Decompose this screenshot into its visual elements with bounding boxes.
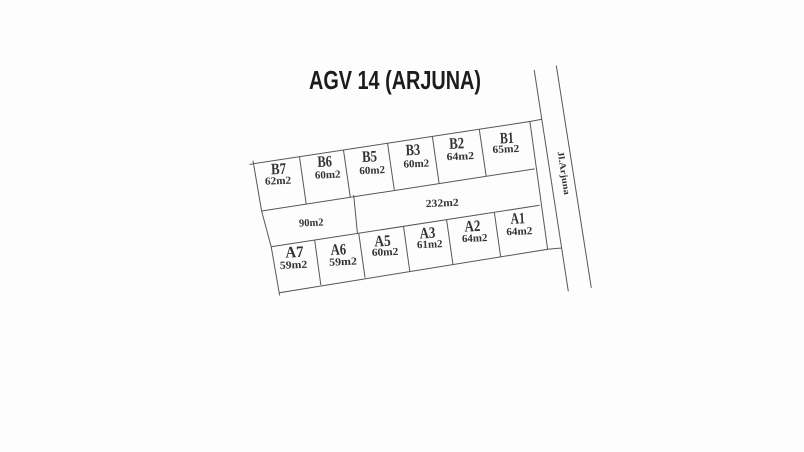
svg-text:65m2: 65m2 (492, 143, 519, 156)
svg-text:90m2: 90m2 (299, 217, 324, 230)
svg-text:64m2: 64m2 (462, 232, 488, 245)
svg-text:AGV 14 (ARJUNA): AGV 14 (ARJUNA) (309, 67, 481, 95)
svg-text:62m2: 62m2 (265, 175, 292, 188)
svg-text:64m2: 64m2 (446, 150, 474, 163)
svg-text:60m2: 60m2 (359, 164, 385, 177)
svg-text:64m2: 64m2 (506, 225, 532, 238)
svg-text:60m2: 60m2 (372, 246, 399, 259)
svg-text:60m2: 60m2 (315, 169, 341, 182)
svg-text:59m2: 59m2 (280, 259, 308, 272)
svg-text:61m2: 61m2 (417, 238, 443, 251)
svg-text:232m2: 232m2 (425, 197, 458, 210)
svg-text:B5: B5 (362, 148, 378, 166)
svg-text:59m2: 59m2 (329, 256, 357, 269)
svg-text:60m2: 60m2 (403, 158, 429, 171)
svg-text:B3: B3 (405, 142, 420, 160)
svg-text:Jl.Arjuna: Jl.Arjuna (556, 150, 573, 196)
